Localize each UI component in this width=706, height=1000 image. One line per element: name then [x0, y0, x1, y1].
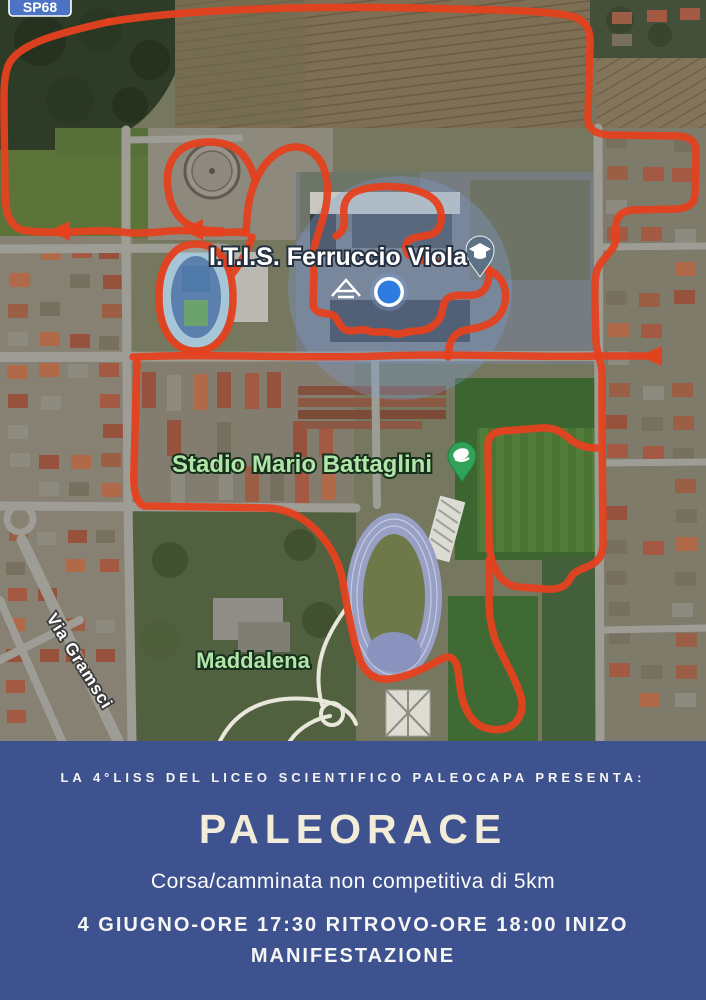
house-roof: [103, 424, 123, 438]
event-title: PALEORACE: [0, 806, 706, 853]
house-roof: [672, 168, 693, 182]
house-roof: [607, 444, 628, 458]
house-roof: [102, 304, 122, 318]
house-roof: [10, 273, 30, 287]
road-badge-label: SP68: [23, 0, 57, 15]
house-roof: [70, 334, 90, 348]
house-roof: [68, 364, 88, 378]
house-roof: [672, 383, 693, 397]
house-roof: [608, 323, 629, 337]
house-roof: [167, 375, 181, 411]
house-roof: [641, 665, 662, 679]
house-roof: [612, 34, 632, 46]
house-roof: [606, 415, 627, 429]
house-roof: [39, 482, 59, 496]
house-roof: [70, 274, 90, 288]
house-roof: [643, 167, 664, 181]
house-roof: [41, 396, 61, 410]
house-roof: [7, 365, 27, 379]
house-roof: [217, 372, 231, 408]
house-roof: [643, 541, 664, 555]
house-roof: [643, 386, 664, 400]
house-roof: [96, 530, 115, 543]
house-roof: [673, 416, 694, 430]
event-banner: LA 4°LISS DEL LICEO SCIENTIFICO PALEOCAP…: [0, 741, 706, 1000]
house-roof: [245, 373, 259, 409]
house-roof: [101, 453, 121, 467]
house-roof: [100, 394, 120, 408]
house-roof: [606, 540, 627, 554]
house-roof: [39, 455, 59, 469]
house-roof: [642, 417, 663, 431]
house-roof: [40, 649, 59, 662]
house-roof: [37, 532, 56, 545]
house-roof: [676, 633, 697, 647]
house-roof: [641, 324, 662, 338]
event-subtitle: Corsa/camminata non competitiva di 5km: [0, 870, 706, 894]
house-roof: [66, 559, 85, 572]
house-roof: [7, 710, 26, 723]
stadium-label: Stadio Mario Battaglini: [172, 451, 432, 478]
house-roof: [641, 227, 662, 241]
race-flyer: SP68 I.T.I.S. Ferruccio Viola Stadio Mar…: [0, 0, 706, 1000]
house-roof: [40, 332, 60, 346]
house-roof: [639, 293, 660, 307]
house-roof: [103, 275, 123, 289]
house-roof: [8, 304, 28, 318]
schedule-line-1: 4 GIUGNO-ORE 17:30 RITROVO-ORE 18:00 INI…: [0, 910, 706, 941]
house-roof: [675, 479, 696, 493]
house-roof: [10, 453, 30, 467]
house-roof: [39, 363, 59, 377]
house-roof: [40, 302, 60, 316]
house-roof: [675, 262, 696, 276]
house-roof: [99, 363, 119, 377]
house-roof: [71, 455, 91, 469]
house-roof: [675, 229, 696, 243]
neighborhood-label: Maddalena: [196, 648, 310, 673]
house-roof: [609, 383, 630, 397]
current-location-dot: [370, 273, 408, 311]
house-roof: [8, 588, 27, 601]
house-roof: [675, 693, 696, 707]
house-roof: [647, 10, 667, 22]
house-roof: [6, 562, 25, 575]
house-roof: [68, 530, 87, 543]
house-roof: [96, 620, 115, 633]
house-roof: [99, 336, 119, 350]
house-roof: [194, 374, 208, 410]
meadow: [0, 150, 155, 238]
house-roof: [676, 665, 697, 679]
house-roof: [674, 290, 695, 304]
house-roof: [8, 332, 28, 346]
house-roof: [142, 372, 156, 408]
presenter-line: LA 4°LISS DEL LICEO SCIENTIFICO PALEOCAP…: [0, 770, 706, 785]
house-roof: [609, 663, 630, 677]
house-roof: [606, 571, 627, 585]
house-roof: [680, 8, 700, 20]
house-roof: [102, 483, 122, 497]
school-label: I.T.I.S. Ferruccio Viola: [209, 243, 468, 271]
residential-east: [596, 128, 706, 741]
house-roof: [100, 559, 119, 572]
satellite-map: SP68 I.T.I.S. Ferruccio Viola Stadio Mar…: [0, 0, 706, 741]
house-roof: [672, 603, 693, 617]
house-roof: [6, 680, 25, 693]
house-roof: [96, 649, 115, 662]
road-badge: SP68: [9, 0, 71, 16]
schedule-line-2: MANIFESTAZIONE: [0, 941, 706, 972]
house-roof: [607, 166, 628, 180]
house-roof: [609, 602, 630, 616]
house-roof: [69, 482, 89, 496]
house-roof: [643, 446, 664, 460]
house-roof: [676, 509, 697, 523]
map-canvas: SP68 I.T.I.S. Ferruccio Viola Stadio Mar…: [0, 0, 706, 741]
house-roof: [606, 291, 627, 305]
house-roof: [675, 572, 696, 586]
house-roof: [606, 506, 627, 520]
house-roof: [8, 425, 28, 439]
house-roof: [612, 12, 632, 24]
house-roof: [639, 693, 660, 707]
house-roof: [267, 372, 281, 408]
event-schedule: 4 GIUGNO-ORE 17:30 RITROVO-ORE 18:00 INI…: [0, 910, 706, 972]
house-roof: [8, 394, 28, 408]
plowed-field-east: [596, 56, 706, 130]
house-roof: [676, 537, 697, 551]
